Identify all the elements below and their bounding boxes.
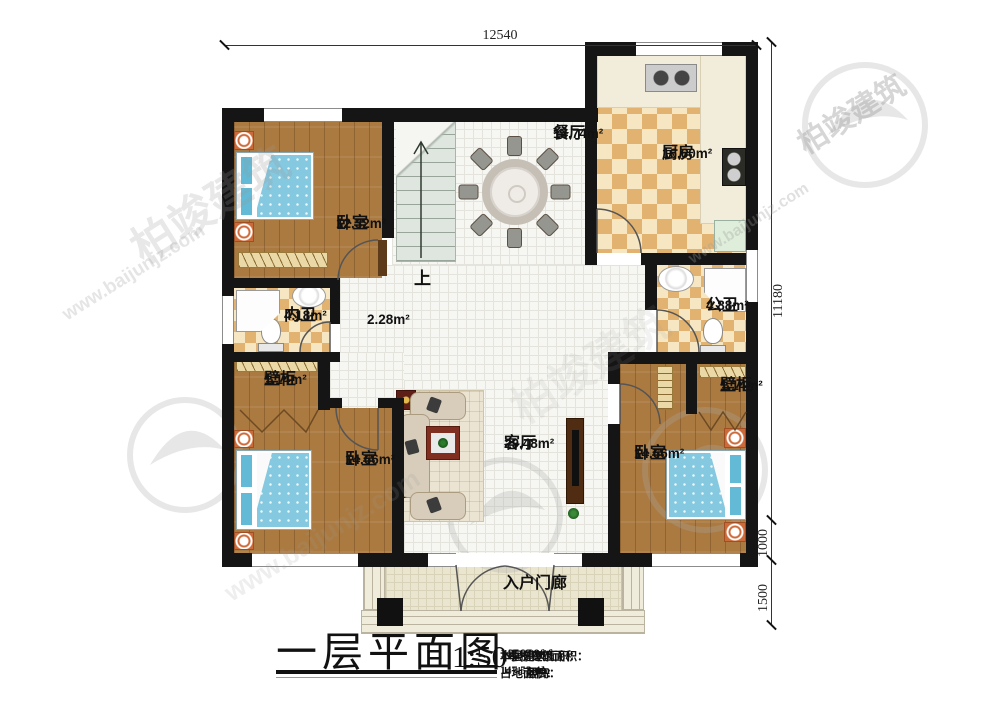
- bed-icon: [236, 450, 312, 530]
- watermark-text: www.baijunjz.com: [59, 220, 210, 326]
- title-underline: [276, 670, 497, 674]
- plant-icon: [568, 508, 579, 519]
- dimension-right-height: 11180: [771, 271, 787, 331]
- window: [554, 553, 582, 567]
- nightstand-icon: [234, 532, 254, 550]
- coffee-table-icon: [426, 426, 460, 460]
- toilet-icon: [700, 318, 726, 354]
- kitchen-sink-icon: [722, 148, 746, 186]
- wall: [392, 408, 404, 553]
- fridge-icon: [714, 220, 746, 252]
- wall: [318, 398, 342, 408]
- wall: [585, 253, 597, 265]
- window: [652, 553, 740, 567]
- wall: [585, 42, 597, 122]
- dining-table-icon: [482, 159, 548, 225]
- window: [222, 296, 234, 344]
- window: [746, 250, 758, 302]
- nightstand-icon: [234, 131, 254, 150]
- porch-side-step-right: [622, 565, 644, 610]
- chair-icon: [459, 185, 479, 200]
- dimension-top-width: 12540: [440, 28, 560, 44]
- tv-icon: [572, 430, 579, 486]
- chair-icon: [551, 185, 571, 200]
- cabinet-icon: [657, 366, 673, 410]
- stairs-break-line: [396, 122, 456, 178]
- nightstand-icon: [724, 428, 746, 448]
- sink-icon: [658, 266, 694, 292]
- dimension-porch-depth: 1000: [756, 513, 772, 573]
- window: [264, 108, 342, 122]
- wall: [645, 265, 657, 310]
- stat-ground-area: 占地面积：147.52m² 层高：3.4m: [500, 665, 526, 677]
- porch-column: [377, 598, 403, 626]
- kitchen-counter-right: [700, 54, 746, 224]
- plan-scale: 1:50: [452, 641, 507, 672]
- nightstand-icon: [234, 430, 254, 448]
- door-leaf: [378, 240, 387, 276]
- porch-column: [578, 598, 604, 626]
- title-underline-thin: [276, 677, 497, 678]
- chair-icon: [507, 136, 522, 156]
- wall: [608, 364, 620, 384]
- stairs-up-label: 上: [414, 264, 431, 289]
- dimension-steps-depth: 1500: [756, 568, 772, 628]
- dresser-icon: [238, 252, 328, 268]
- nightstand-icon: [234, 222, 254, 242]
- wall: [330, 288, 340, 324]
- window: [252, 553, 358, 567]
- floor-plan: 卧室 12.32m² 餐厅 14.74m² 厨房 16.60m² 内卫 4.18…: [0, 0, 1000, 706]
- wall: [378, 398, 404, 408]
- wall: [686, 364, 697, 414]
- wall: [608, 424, 620, 553]
- window: [428, 553, 456, 567]
- wall: [608, 352, 758, 364]
- wall: [641, 253, 758, 265]
- dimension-line-top: [224, 45, 756, 46]
- chair-icon: [507, 228, 522, 248]
- bed-icon: [236, 152, 314, 220]
- watermark-text: 柏竣建筑: [787, 62, 912, 163]
- stat-floor-area: 本层建筑面积：142.07m² 本栋建筑面积：256.09m²: [500, 648, 508, 660]
- nightstand-icon: [724, 522, 746, 542]
- stove-icon: [645, 64, 697, 92]
- wall: [234, 278, 340, 288]
- front-door-opening: [456, 553, 554, 567]
